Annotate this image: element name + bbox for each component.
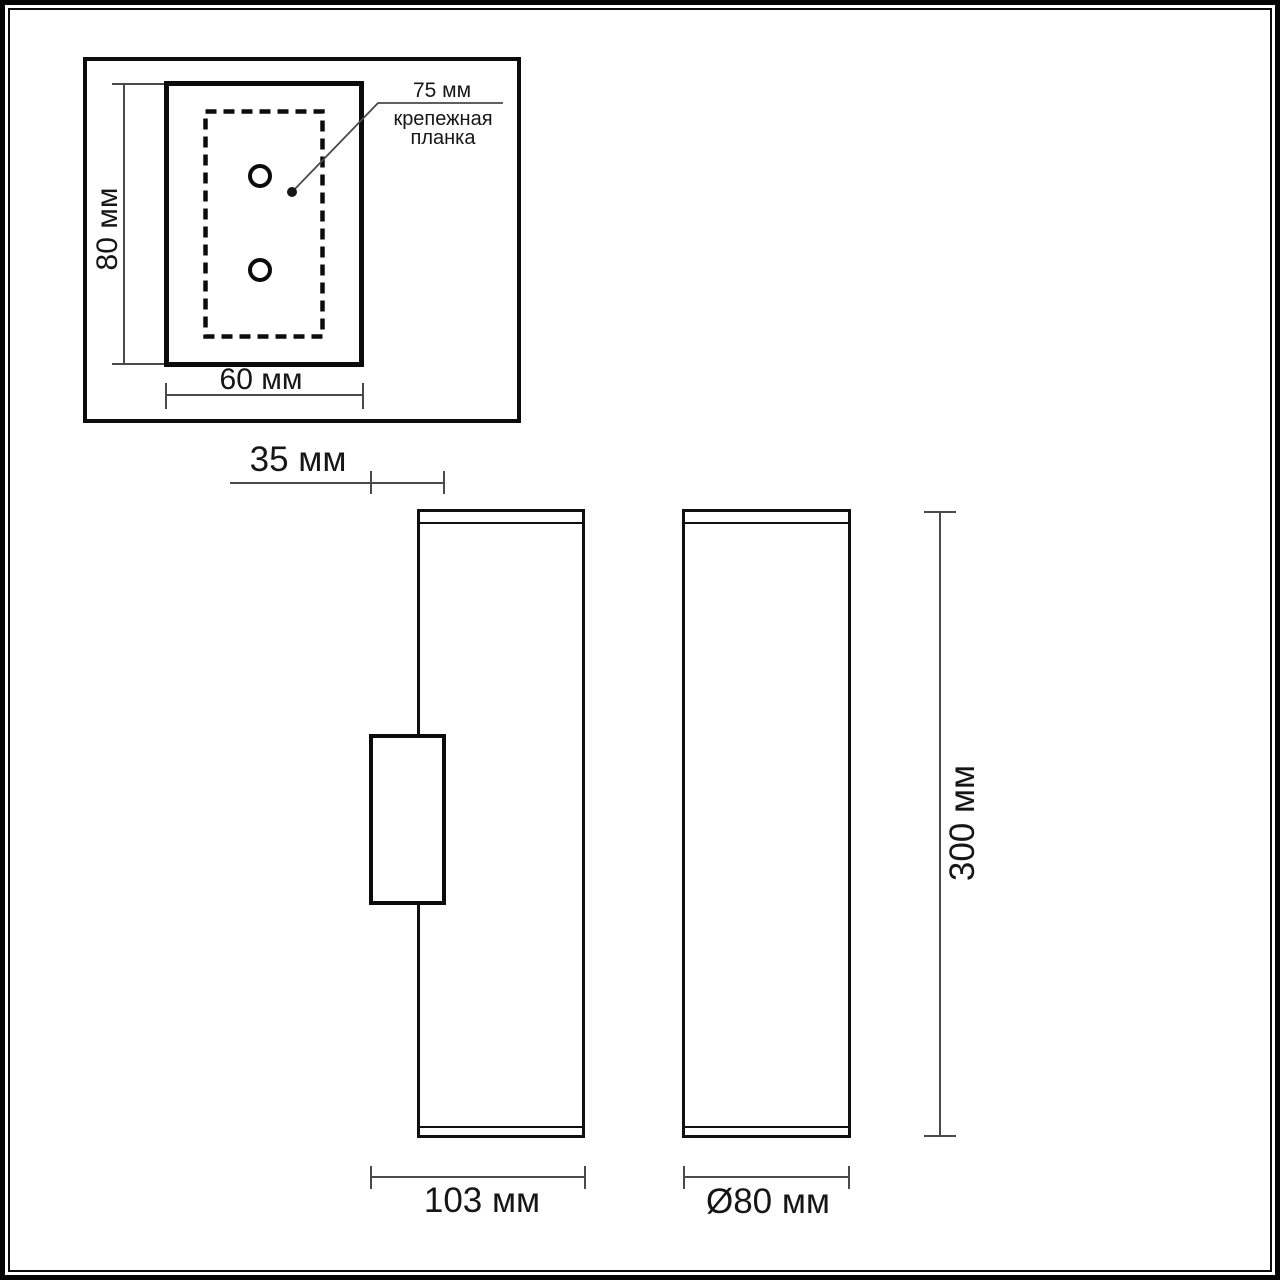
side-view-bottom-cap-line xyxy=(420,1126,582,1128)
front-view-body xyxy=(682,509,851,1138)
label-plate-width: 60 мм xyxy=(191,363,331,397)
label-body-diameter: Ø80 мм xyxy=(668,1182,868,1222)
technical-drawing-canvas: 75 мм крепежная планка 80 мм 60 мм 35 мм… xyxy=(0,0,1280,1280)
label-plate-height: 80 мм xyxy=(91,164,125,294)
label-bracket-caption-line2: планка xyxy=(363,129,523,148)
mounting-plate-outline xyxy=(164,81,364,367)
side-view-mounting-block xyxy=(369,734,446,905)
label-body-depth: 103 мм xyxy=(382,1181,582,1221)
side-view-top-cap-line xyxy=(420,522,582,524)
label-hole-spacing: 75 мм xyxy=(377,79,507,103)
screw-hole-top xyxy=(248,164,272,188)
front-view-top-cap-line xyxy=(685,522,848,524)
label-body-height: 300 мм xyxy=(943,723,983,923)
label-bracket-depth: 35 мм xyxy=(218,440,378,480)
front-view-bottom-cap-line xyxy=(685,1126,848,1128)
label-bracket-caption: крепежная планка xyxy=(363,110,523,148)
screw-hole-bottom xyxy=(248,258,272,282)
